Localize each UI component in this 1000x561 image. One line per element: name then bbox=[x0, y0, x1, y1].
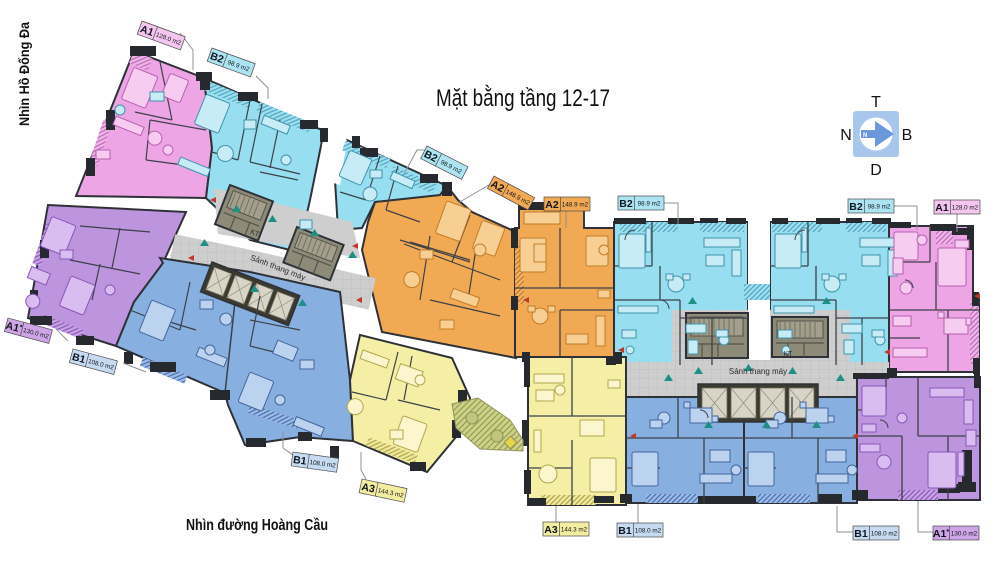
svg-text:B2: B2 bbox=[849, 201, 863, 213]
svg-text:N: N bbox=[863, 133, 867, 139]
svg-text:B1: B1 bbox=[292, 454, 307, 468]
svg-text:B2: B2 bbox=[619, 198, 633, 210]
svg-text:A2: A2 bbox=[545, 199, 559, 211]
svg-text:B1: B1 bbox=[618, 525, 632, 537]
svg-text:B: B bbox=[902, 127, 913, 144]
svg-text:148.9 m2: 148.9 m2 bbox=[562, 202, 589, 209]
svg-text:B1: B1 bbox=[854, 528, 868, 540]
svg-text:T: T bbox=[871, 94, 881, 111]
svg-text:A3: A3 bbox=[544, 524, 558, 536]
svg-text:108.0 m2: 108.0 m2 bbox=[635, 528, 662, 535]
svg-text:D: D bbox=[870, 162, 882, 179]
svg-text:98.9 m2: 98.9 m2 bbox=[638, 201, 661, 208]
svg-text:98.9 m2: 98.9 m2 bbox=[868, 204, 891, 211]
svg-text:Nhìn đường Hoàng Cầu: Nhìn đường Hoàng Cầu bbox=[186, 517, 328, 534]
svg-text:144.3 m2: 144.3 m2 bbox=[561, 527, 588, 534]
svg-text:Nhìn Hồ Đống Đa: Nhìn Hồ Đống Đa bbox=[16, 22, 32, 126]
svg-text:128.0 m2: 128.0 m2 bbox=[952, 205, 979, 212]
svg-text:KT: KT bbox=[784, 351, 794, 358]
svg-text:Sảnh thang máy: Sảnh thang máy bbox=[729, 367, 787, 376]
svg-text:Mặt bằng tầng 12-17: Mặt bằng tầng 12-17 bbox=[436, 85, 610, 112]
svg-text:N: N bbox=[840, 127, 852, 144]
svg-text:130.0 m2: 130.0 m2 bbox=[951, 531, 978, 538]
svg-text:108.0 m2: 108.0 m2 bbox=[871, 531, 898, 538]
svg-text:A1: A1 bbox=[935, 202, 949, 214]
